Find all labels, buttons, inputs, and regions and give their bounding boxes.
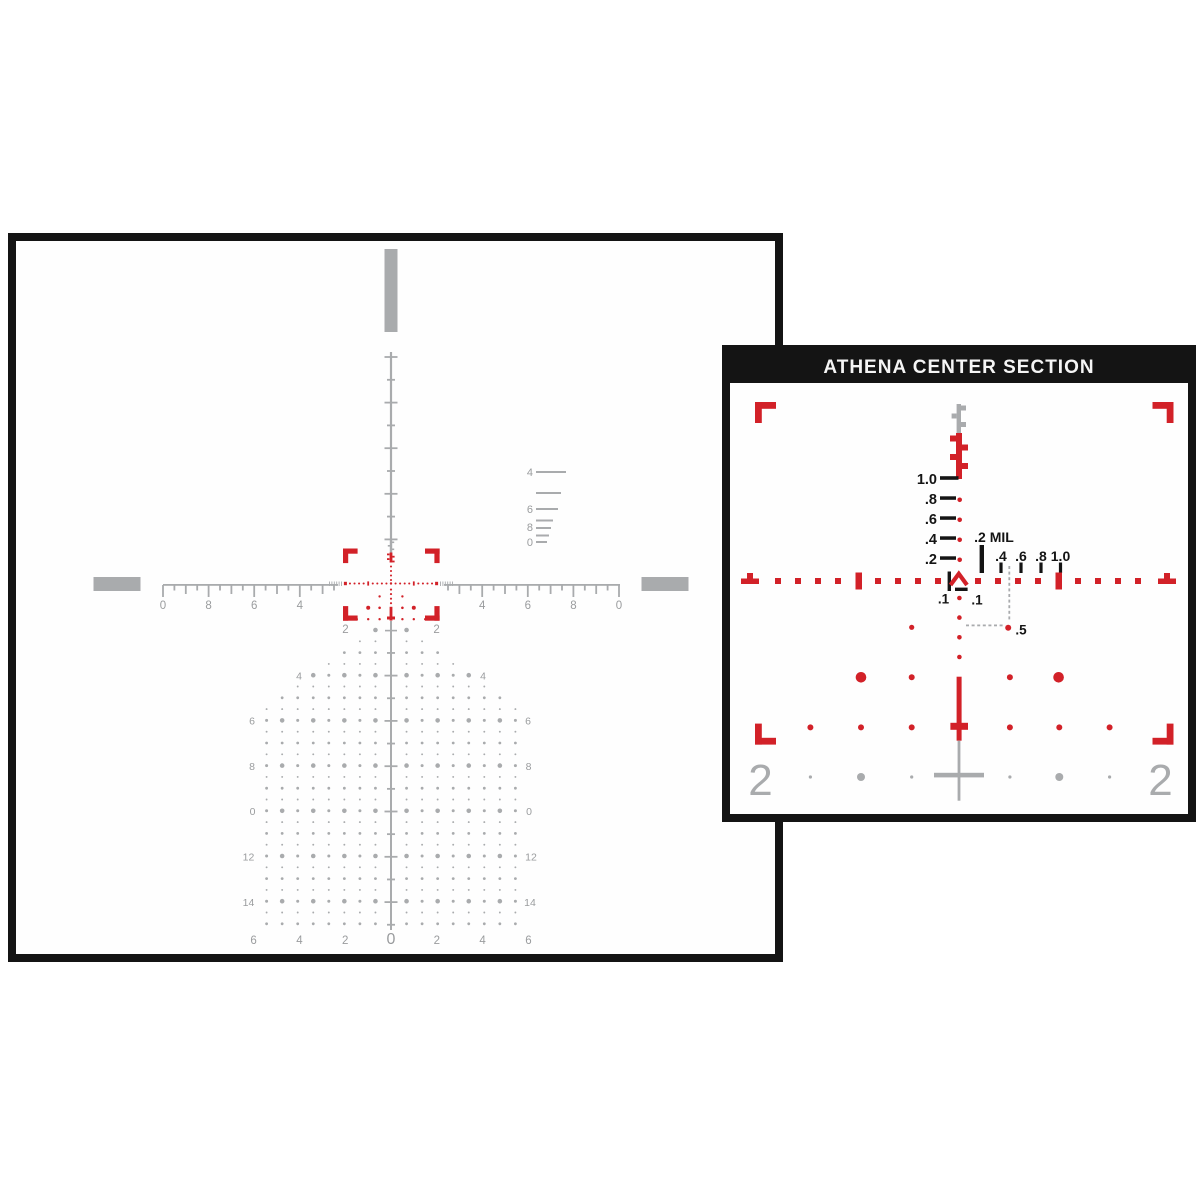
center-section-panel: ATHENA CENTER SECTION [722,345,1196,822]
reticle-diagram: ATHENA CENTER SECTION 086422468046804466… [0,0,1200,1200]
full-reticle-panel [8,233,783,962]
inset-title: ATHENA CENTER SECTION [730,353,1188,383]
